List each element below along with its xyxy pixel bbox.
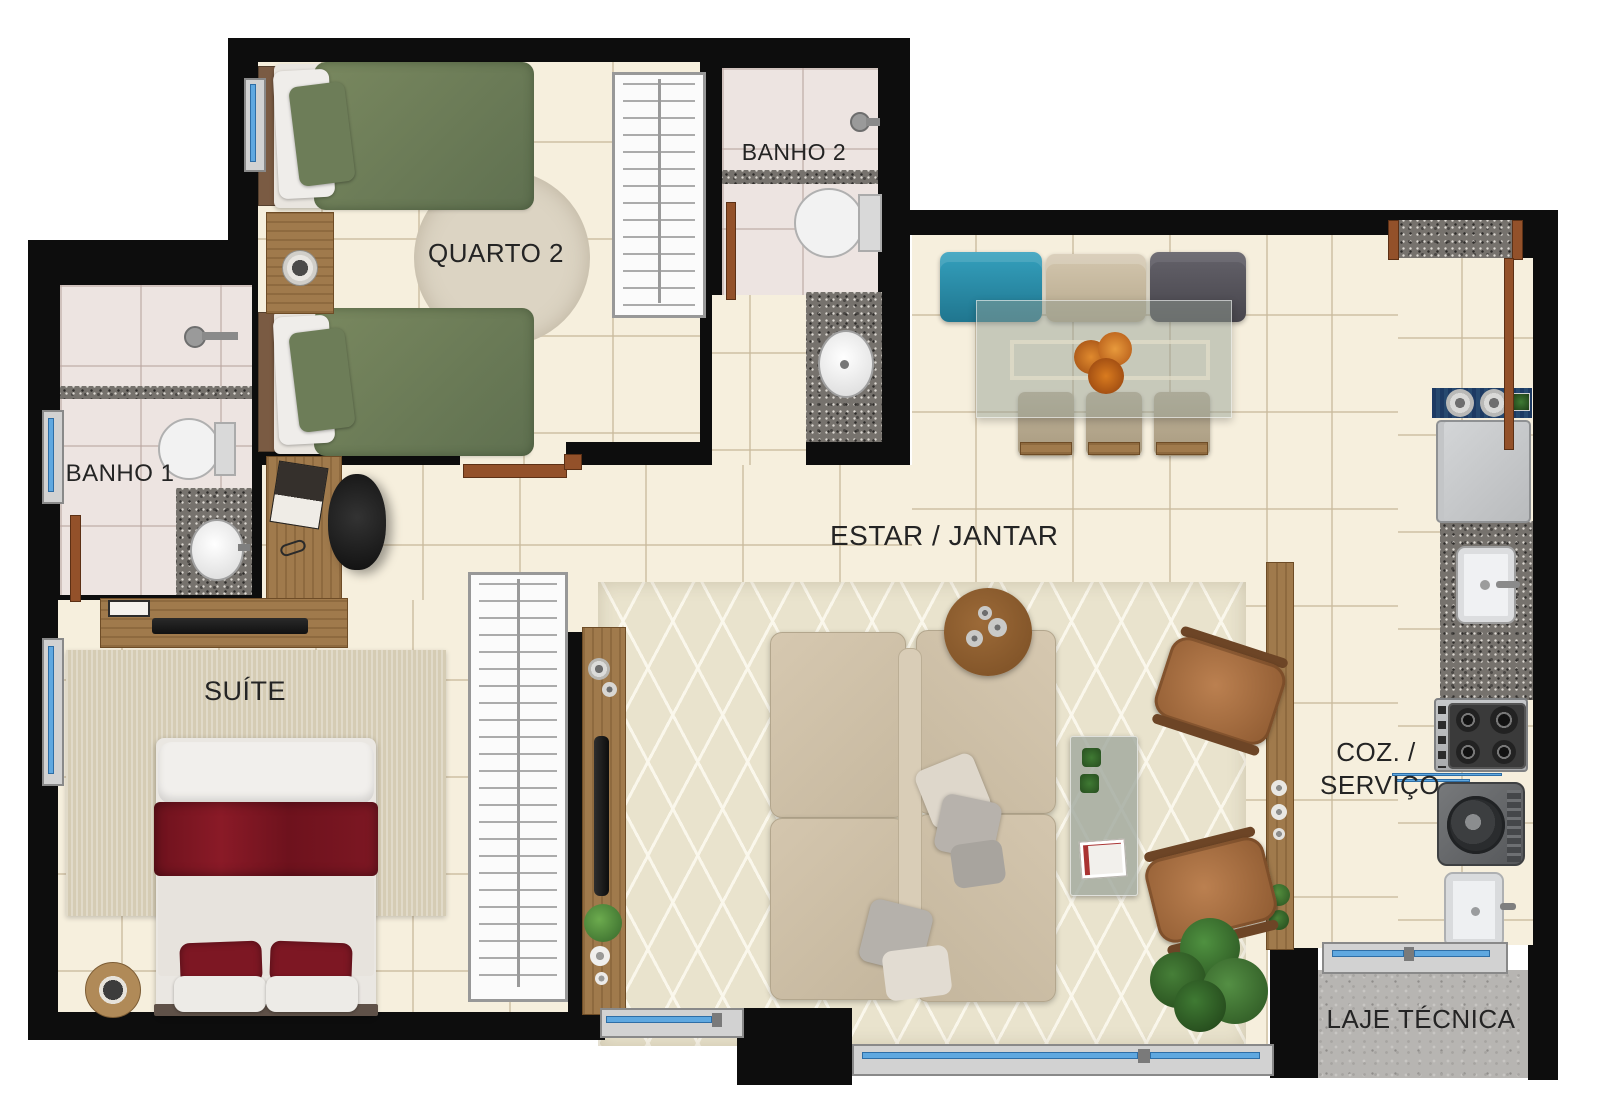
divider-jar-1 [1271,780,1287,796]
bed-pillow-green [288,327,356,433]
tub-drain [1471,907,1480,916]
window-living-left-latch [712,1013,722,1027]
side-table-cup-3 [978,606,992,620]
refrigerator [1436,420,1531,523]
plant-leaf-4 [1174,980,1226,1032]
banho2-toilet-tank [858,194,882,252]
suite-double-bed [154,738,378,1016]
console-tv [594,736,609,896]
banho1-faucet [238,544,250,551]
room-label-banho1: BANHO 1 [62,460,178,488]
console-speaker-small [602,682,617,697]
window-living-left-glass [606,1016,712,1023]
table-lamp [282,250,318,286]
banho1-washbasin [190,519,244,581]
wardrobe-rail [517,579,520,987]
divider-jar-2 [1271,804,1287,820]
flower-cluster-3 [1088,358,1124,394]
console-bowl-small [595,972,608,985]
coffee-table-magazine [1079,838,1128,879]
coz-line2: SERVIÇO [1320,769,1432,802]
dining-chair-wood-bar [1156,442,1208,455]
coffee-table-plant-2 [1080,774,1099,793]
laundry-tub [1444,872,1504,948]
kitchen-faucet [1496,581,1520,588]
banho1-shower-arm [202,332,238,340]
floor-plant [1150,918,1270,1038]
banho1-door [70,515,81,602]
window-banho1-glass [48,418,54,492]
suite-red-throw [154,802,378,876]
cooktop-knobs [1438,706,1446,768]
window-living-right [852,1044,1274,1076]
tub-faucet [1500,903,1516,910]
floor-plan: QUARTO 2 BANHO 2 BANHO 1 [0,0,1600,1119]
window-laje-latch [1404,947,1414,961]
bed-pillow-green [288,81,356,187]
kitchen-drain [1480,580,1490,590]
suite-picture-frame [108,600,150,617]
washer-panel [1507,790,1521,862]
quarto2-door [463,464,567,478]
kitchen-door [1504,258,1514,450]
room-label-coz-servico: COZ. / SERVIÇO [1320,736,1432,802]
pass-through-jamb-right [1512,220,1523,260]
burner-3 [1456,740,1480,764]
window-laje-glass-2 [1414,950,1490,957]
banho1-granite-strip [60,386,252,399]
burner-1 [1456,708,1480,732]
cooktop [1434,698,1528,772]
console-speaker-large [588,658,610,680]
niche-faucet [840,360,849,369]
suite-white-pillow-right [266,976,358,1012]
banho2-granite-strip [722,170,878,184]
side-table-cup-2 [988,618,1007,637]
book [269,460,328,529]
suite-tv [152,618,308,634]
sofa-pillow-5 [881,944,953,1002]
flower-centerpiece [1068,330,1140,396]
wardrobe-rail [658,79,661,303]
window-laje [1322,942,1508,974]
wall-laje-left [1270,948,1318,1078]
runner-dish-green [1512,393,1530,411]
pass-through-counter [1397,220,1512,258]
side-table-cup-1 [966,630,983,647]
sofa-section-tl [770,632,906,818]
burner-4 [1492,740,1516,764]
quarto2-door-jamb [564,454,582,470]
wardrobe-quarto2 [612,72,706,318]
banho2-door [726,202,736,300]
single-bed-1 [258,62,534,210]
round-side-table [944,588,1032,676]
room-label-banho2: BANHO 2 [732,139,856,166]
washer-drum [1447,796,1505,854]
runner-plate-1 [1446,389,1474,417]
suite-side-table [85,962,141,1018]
dining-chair-wood-bar [1020,442,1072,455]
window-suite-glass [48,646,54,774]
pass-through-jamb-left [1388,220,1399,260]
office-chair [328,474,386,570]
room-label-estar-jantar: ESTAR / JANTAR [830,520,1058,552]
console-bowl [590,946,610,966]
coffee-table-plant-1 [1082,748,1101,767]
suite-top-pillow [158,742,374,804]
coz-line1: COZ. / [1320,736,1432,769]
room-label-laje: LAJE TÉCNICA [1318,1004,1524,1035]
suite-white-pillow-left [174,976,266,1012]
banho2-toilet [794,188,864,258]
divider-jar-3 [1273,828,1285,840]
window-living-right-latch [1138,1049,1150,1063]
banho1-toilet-tank [214,422,236,476]
window-quarto2-glass [250,84,256,162]
dining-chair-wood-bar [1088,442,1140,455]
window-living-right-glass [862,1052,1138,1059]
window-living-right-glass-2 [1150,1052,1260,1059]
washing-machine [1437,782,1525,866]
sofa-pillow-3 [949,839,1007,890]
burner-2 [1490,706,1518,734]
wall-entry-column [737,1008,852,1085]
window-laje-glass [1332,950,1404,957]
floor-corridor [712,295,806,465]
window-living-left [600,1008,744,1038]
room-label-quarto2: QUARTO 2 [428,238,564,269]
room-label-suite: SUÍTE [200,676,290,707]
console-plant [584,904,622,942]
wardrobe-suite [468,572,568,1002]
banho2-shower-arm [866,118,880,126]
single-bed-2 [258,308,534,456]
